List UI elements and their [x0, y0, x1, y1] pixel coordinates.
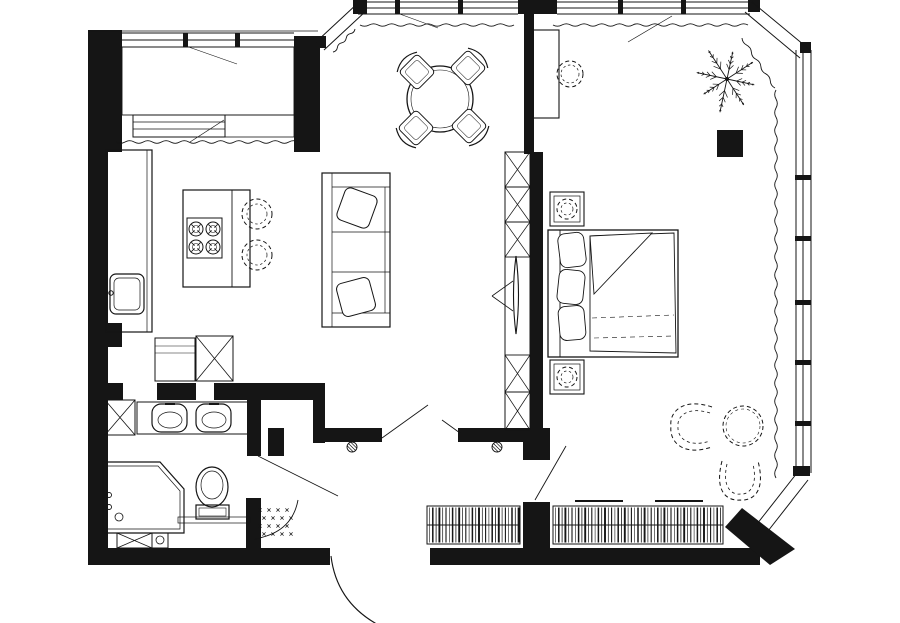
- plant-needle: [706, 75, 711, 77]
- entrance-door-arc: [331, 556, 424, 623]
- burner-4-ring: [206, 240, 220, 254]
- curtain-tl-small: [333, 29, 355, 52]
- wall-bath-top-gap1: [123, 383, 157, 400]
- bath-box-drain: [152, 533, 168, 548]
- wall-bottom-right: [430, 548, 760, 565]
- floor-plan-page: [0, 0, 900, 623]
- armchair-2-inner: [726, 464, 755, 494]
- window-diagonal-tl-line: [324, 11, 366, 50]
- bar-stool-2-outer: [242, 240, 272, 270]
- bath-box-drain-circle: [156, 536, 164, 544]
- appliance-fridge-lines: [155, 346, 195, 353]
- leader-balcony: [183, 45, 237, 64]
- plant-needle: [701, 74, 704, 75]
- wardrobe-cell-1: [505, 152, 530, 187]
- column: [717, 130, 743, 157]
- shower-outline: [103, 462, 184, 533]
- window-diagonal-tl-line: [316, 3, 358, 42]
- window-diagonal-br-line: [768, 480, 808, 531]
- wall-top-pier: [518, 0, 557, 14]
- wall-bedroom-door-pier: [523, 502, 550, 548]
- window-right: [796, 50, 811, 473]
- jamb-tl: [312, 36, 326, 48]
- tv-arrow-line: [492, 281, 513, 296]
- window-diagonal-br-line: [757, 473, 797, 524]
- appliance-fridge: [155, 338, 195, 381]
- lamp-1: [557, 199, 577, 219]
- leader-kitchen-line: [190, 120, 224, 142]
- bath-box-x: [117, 533, 152, 548]
- balcony-floor: [122, 47, 294, 115]
- plant-needle: [723, 97, 725, 102]
- dining-chair-nw: [394, 49, 436, 91]
- wall-bath-top-gap2: [196, 383, 214, 400]
- window-diagonal-tr-line: [752, 2, 810, 50]
- wardrobe-cell-3: [505, 222, 530, 257]
- plant-needle: [752, 84, 753, 85]
- nightstand-1-inner: [554, 196, 580, 222]
- door-stop-1-hatch: [348, 443, 355, 450]
- wall-hall-pier: [268, 428, 284, 456]
- wardrobe-cell-5: [505, 392, 530, 430]
- bed-pillow-3-body: [558, 305, 587, 341]
- kitchen-sink-inner: [114, 278, 140, 310]
- dining-chair-se: [450, 107, 492, 149]
- shower-inner: [107, 466, 180, 529]
- sofa-pillow-2-body: [335, 276, 377, 318]
- toilet-ledge: [178, 517, 250, 523]
- kitchen-island: [183, 190, 250, 287]
- side-table: [723, 406, 763, 446]
- bath-shaft: [105, 400, 135, 435]
- living-door-leaf-right-line: [442, 420, 460, 433]
- window-balcony: [122, 33, 294, 47]
- leader-balcony-line: [183, 45, 237, 64]
- plant-needle: [742, 80, 746, 82]
- door-stop-2-hatch: [496, 442, 502, 448]
- door-stop-2-hatch: [492, 446, 498, 452]
- radiator-1: [427, 506, 520, 544]
- wall-left-balcony: [88, 30, 122, 152]
- living-door-leaf-left: [382, 405, 428, 438]
- plant-branch: [697, 73, 727, 79]
- lamp-2-outer: [557, 367, 577, 387]
- bathroom-door-leaf-line: [258, 456, 338, 496]
- leader-bedroom-window: [628, 16, 672, 42]
- wardrobe-strip: [505, 152, 530, 430]
- wall-balcony-right: [294, 36, 320, 152]
- floor-plan: [0, 0, 900, 623]
- tv-panel: [514, 256, 519, 334]
- lamp-1-inner: [561, 203, 573, 215]
- plant-needle: [727, 64, 729, 70]
- curtain-living: [360, 24, 514, 26]
- door-stop-1-hatch: [351, 442, 357, 448]
- bar-stool-1-outer: [242, 199, 272, 229]
- door-stop-2: [492, 442, 502, 452]
- sofa-pillow-2: [335, 276, 377, 318]
- wall-living-south-left: [325, 428, 382, 442]
- lamp-1-outer: [557, 199, 577, 219]
- plant-needle: [725, 91, 728, 98]
- bed-pillow-3: [558, 305, 587, 341]
- wall-left: [88, 150, 108, 565]
- blanket-fold: [590, 233, 652, 294]
- burner-1: [189, 222, 203, 236]
- lamp-2-inner: [561, 371, 573, 383]
- toilet-seat: [201, 471, 223, 499]
- bedroom-console: [533, 30, 559, 118]
- wardrobe-cell-2: [505, 187, 530, 222]
- plant-branch: [708, 50, 727, 79]
- window-diagonal-br: [757, 473, 808, 531]
- plant-needle: [732, 53, 733, 54]
- bar-stool-1: [242, 199, 272, 229]
- lamp-2: [557, 367, 577, 387]
- wardrobe-cell-4: [505, 355, 530, 392]
- plant-branch: [727, 79, 744, 105]
- wall-kitchen-stub: [108, 323, 122, 347]
- kitchen-counter: [106, 150, 152, 332]
- radiator-2: [553, 506, 723, 544]
- dining-chair-ne: [449, 45, 491, 87]
- plant-needle: [737, 79, 743, 81]
- window-living-top: [358, 2, 518, 14]
- plant: [697, 50, 755, 112]
- entry-mat: [258, 508, 292, 535]
- burner-4: [206, 240, 220, 254]
- burner-1-ring: [189, 222, 203, 236]
- blanket-seams: [592, 315, 674, 338]
- blanket-seams-line: [592, 315, 674, 318]
- bed-pillow-1: [557, 232, 587, 269]
- toilet-tank-inner: [199, 508, 226, 516]
- sofa-pillow-1-body: [335, 186, 379, 230]
- balcony-sill: [225, 115, 294, 137]
- plant-branch: [727, 62, 753, 79]
- door-stop-1-hatch: [347, 446, 353, 452]
- blanket-seams-line: [594, 336, 674, 338]
- wall-wardrobe-back: [530, 152, 543, 432]
- living-door-leaf-right: [442, 420, 460, 433]
- balcony-bench: [133, 115, 225, 137]
- burner-3: [189, 240, 203, 254]
- dining-chair-sw: [393, 109, 435, 151]
- wall-bath-east-upper: [247, 400, 261, 456]
- leader-kitchen: [190, 120, 224, 142]
- side-table-inner: [726, 409, 760, 443]
- bed-pillow-1-body: [557, 232, 587, 269]
- tv-arrow: [492, 281, 513, 311]
- living-door-leaf-left-line: [382, 405, 428, 438]
- bar-stool-2: [242, 240, 272, 270]
- window-bedroom-top: [557, 2, 750, 14]
- console-stool: [557, 61, 583, 87]
- door-stop-2-hatch: [493, 443, 500, 450]
- kitchen-island-lines: [232, 190, 250, 287]
- curtain-bedroom-corner: [742, 38, 775, 88]
- plant-needle: [710, 77, 716, 80]
- plant-needle: [728, 60, 730, 64]
- shower-drain: [115, 513, 123, 521]
- cooktop: [187, 218, 222, 258]
- basin-2-bowl: [202, 412, 226, 428]
- console-stool-inner: [561, 65, 579, 83]
- curtain-kitchen: [116, 141, 298, 144]
- burner-3-ring: [189, 240, 203, 254]
- curtain-bedroom-top: [553, 24, 748, 26]
- door-stop-1: [347, 442, 357, 452]
- plant-branch: [727, 52, 733, 79]
- sofa-pillow-1: [335, 186, 379, 230]
- bed-pillow-2: [556, 269, 585, 306]
- nightstand-2-inner: [554, 364, 580, 390]
- plant-needle: [722, 104, 723, 107]
- bathroom-door-leaf: [258, 456, 338, 496]
- armchair-1-inner: [678, 411, 710, 444]
- bed-pillow-2-body: [556, 269, 585, 306]
- nightstand-1: [550, 192, 584, 226]
- wall-bottom-left: [88, 548, 330, 565]
- burner-2-ring: [206, 222, 220, 236]
- tv-arrow-line: [492, 296, 513, 311]
- curtain-bedroom-right: [775, 90, 778, 478]
- burner-2: [206, 222, 220, 236]
- leader-bedroom-window-line: [628, 16, 672, 42]
- basin-1-bowl: [158, 412, 182, 428]
- plant-branch: [720, 79, 727, 112]
- washing-machine: [196, 336, 233, 381]
- nightstand-2: [550, 360, 584, 394]
- plant-branch: [727, 79, 754, 85]
